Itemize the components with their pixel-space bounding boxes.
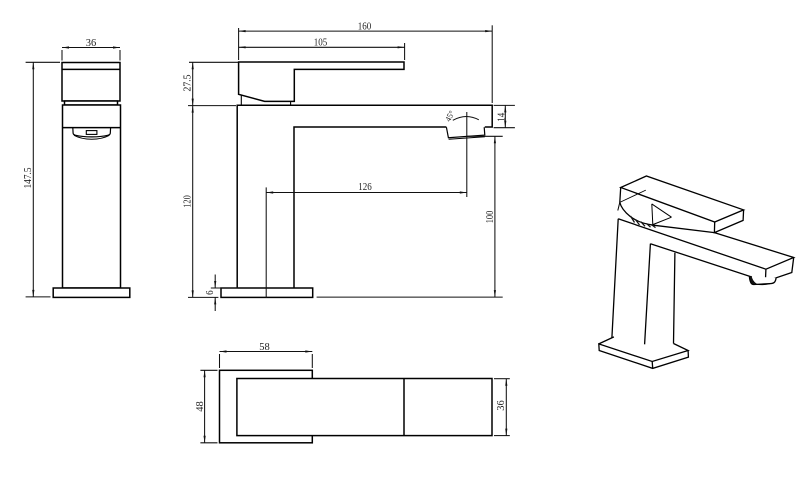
svg-text:126: 126 <box>358 181 372 193</box>
svg-text:147.5: 147.5 <box>22 167 34 188</box>
svg-text:48: 48 <box>194 401 206 412</box>
svg-text:14: 14 <box>496 112 508 121</box>
svg-text:58: 58 <box>259 341 270 353</box>
svg-text:6: 6 <box>204 290 216 295</box>
svg-text:100: 100 <box>484 210 496 223</box>
svg-text:27.5: 27.5 <box>182 74 194 91</box>
svg-text:105: 105 <box>314 37 328 49</box>
svg-text:36: 36 <box>86 37 97 49</box>
svg-text:160: 160 <box>358 20 372 32</box>
svg-text:120: 120 <box>182 195 194 208</box>
svg-text:36: 36 <box>495 400 507 411</box>
